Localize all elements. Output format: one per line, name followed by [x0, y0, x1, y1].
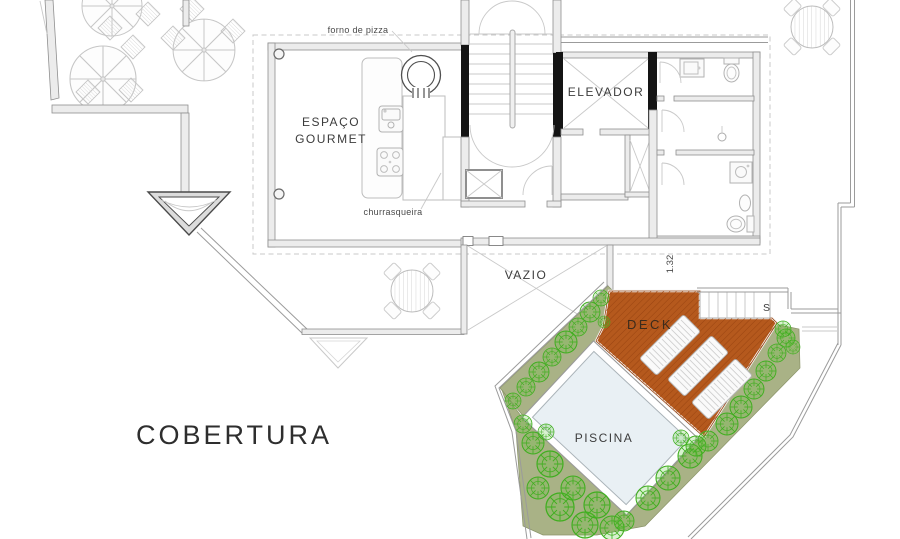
triangle-planter — [148, 192, 230, 235]
room-label-vazio: VAZIO — [505, 268, 548, 282]
cooktop-icon — [377, 148, 403, 176]
dimension-label: 1.32 — [665, 255, 676, 274]
bathroom-sink-icon — [680, 59, 704, 77]
column — [274, 189, 284, 199]
toilet-icon — [727, 216, 754, 232]
barbecue-counter — [443, 137, 463, 200]
shower-drain-icon — [718, 126, 726, 141]
stairs-direction-label: S — [763, 302, 770, 314]
floor-plan-page: ESPAÇO GOURMET forno de pizza churrasque… — [0, 0, 900, 539]
annotation-forno-de-pizza: forno de pizza — [328, 25, 389, 35]
umbrella-icon — [70, 46, 136, 112]
pizza-oven-icon — [402, 56, 441, 99]
toilet-icon — [724, 58, 739, 82]
plan-title: COBERTURA — [136, 420, 332, 450]
bathrooms — [649, 52, 760, 243]
deck-stairs: S — [697, 288, 788, 318]
room-label-espaco-gourmet-line2: GOURMET — [295, 132, 367, 146]
staircase — [461, 0, 561, 207]
room-label-deck: DECK — [627, 317, 673, 332]
elevator-lobby — [561, 135, 656, 200]
room-label-piscina: PISCINA — [575, 431, 634, 445]
gourmet-room: ESPAÇO GOURMET forno de pizza churrasque… — [268, 25, 466, 247]
bidet-icon — [740, 195, 751, 211]
stair-handrail — [510, 30, 515, 128]
round-table-icon — [783, 0, 840, 56]
floor-plan-drawing: ESPAÇO GOURMET forno de pizza churrasque… — [0, 0, 900, 539]
roof-terrace-umbrella-area — [70, 0, 245, 112]
kitchen-counter — [403, 96, 445, 200]
bathroom-sink-icon — [730, 162, 752, 183]
elevator: ELEVADOR — [556, 52, 656, 135]
triangle-outline — [310, 338, 367, 368]
door-arc — [660, 62, 681, 83]
annotation-churrasqueira: churrasqueira — [364, 207, 423, 217]
round-table-icon — [383, 262, 440, 319]
door-arc — [662, 110, 684, 132]
door-arc — [662, 163, 684, 185]
door-arc — [523, 166, 552, 195]
sink-icon — [379, 106, 403, 132]
room-label-espaco-gourmet-line1: ESPAÇO — [302, 115, 360, 129]
room-label-elevador: ELEVADOR — [568, 85, 644, 99]
duct-shaft — [466, 170, 502, 198]
column — [274, 49, 284, 59]
